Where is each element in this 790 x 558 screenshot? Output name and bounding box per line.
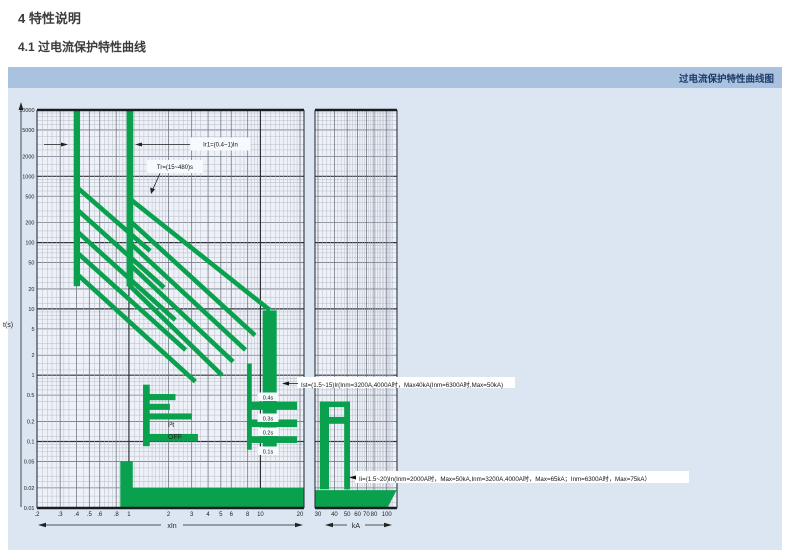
- axis-arrowhead: [384, 523, 392, 527]
- tr-label: Tr=(15~480)s: [157, 165, 193, 171]
- x-tick-label: .8: [114, 512, 120, 518]
- trip-curve-band: [247, 436, 297, 443]
- trip-curve-band: [320, 402, 329, 490]
- ka-instantaneous-block: [315, 490, 397, 508]
- x-tick-label: .3: [58, 512, 64, 518]
- y-tick-label: 2: [31, 353, 34, 359]
- ka-axis-title: kA: [352, 523, 361, 530]
- trip-curve-chart: 100005000200010005002001005020105210.50.…: [0, 88, 790, 550]
- trip-curve-band: [247, 402, 297, 410]
- i2t-off-label: OFF: [168, 434, 182, 441]
- x-tick-label: 4: [206, 512, 210, 518]
- i2t-off-label: I²t: [168, 422, 174, 429]
- x-tick-label: .5: [87, 512, 93, 518]
- y-tick-label: 10: [28, 307, 34, 313]
- x-tick-label: 3: [190, 512, 194, 518]
- step-time-label: 0.1s: [263, 449, 274, 455]
- x-tick-label: 30: [315, 512, 322, 518]
- axis-arrowhead: [325, 523, 333, 527]
- trip-curve-band: [320, 417, 347, 424]
- axis-arrowhead: [295, 523, 303, 527]
- y-tick-label: 20: [28, 287, 34, 293]
- x-tick-label: 70: [363, 512, 370, 518]
- y-tick-label: 1: [31, 373, 34, 379]
- y-tick-label: 0.05: [24, 459, 35, 465]
- x-tick-label: .2: [34, 512, 40, 518]
- x-tick-label: 2: [167, 512, 171, 518]
- x-tick-label: 6: [230, 512, 234, 518]
- ii-annotation: Ii=(1.5~20)In(Inm=2000A时，Max=50kA,Inm=32…: [359, 475, 651, 483]
- x-tick-label: 40: [331, 512, 338, 518]
- y-tick-label: 500: [25, 194, 34, 200]
- x-tick-label: .4: [74, 512, 80, 518]
- y-tick-label: 0.02: [24, 486, 35, 492]
- x-tick-label: 60: [354, 512, 361, 518]
- trip-curve-band: [143, 404, 170, 410]
- instantaneous-notch: [120, 461, 132, 487]
- x-tick-label: .6: [97, 512, 103, 518]
- x-tick-label: 100: [382, 512, 393, 518]
- trip-curve-band: [344, 402, 350, 490]
- y-tick-label: 0.5: [27, 393, 35, 399]
- x-axis-title: xIn: [167, 523, 176, 530]
- ir1-label: Ir1=(0.4~1)In: [203, 143, 238, 149]
- x-tick-label: 5: [219, 512, 223, 518]
- page: 4 特性说明 4.1 过电流保护特性曲线 过电流保护特性曲线图 10000500…: [0, 0, 790, 558]
- x-tick-label: 20: [297, 512, 304, 518]
- y-axis-title: t(s): [3, 322, 13, 329]
- y-tick-label: 200: [25, 221, 34, 227]
- step-time-label: 0.4s: [263, 395, 274, 401]
- y-tick-label: 100: [25, 241, 34, 247]
- step-time-label: 0.2s: [263, 430, 274, 436]
- y-tick-label: 0.2: [27, 420, 35, 426]
- y-tick-label: 5: [31, 327, 34, 333]
- y-tick-label: 0.01: [24, 506, 35, 512]
- y-tick-label: 2000: [22, 154, 34, 160]
- instantaneous-block: [120, 488, 304, 508]
- trip-curve-band: [143, 394, 175, 400]
- ist-annotation: Ist=(1.5~15)Ir(Inm=3200A,4000A时，Max40kA(…: [301, 381, 503, 389]
- trip-curve-band: [74, 110, 80, 286]
- x-tick-label: 8: [246, 512, 250, 518]
- y-tick-label: 50: [28, 261, 34, 267]
- panel-header: 过电流保护特性曲线图: [8, 67, 782, 88]
- y-tick-label: 5000: [22, 128, 34, 134]
- x-tick-label: 80: [371, 512, 378, 518]
- panel-header-title: 过电流保护特性曲线图: [679, 71, 774, 85]
- subsection-title: 4.1 过电流保护特性曲线: [18, 38, 146, 55]
- x-tick-label: 50: [344, 512, 351, 518]
- trip-curve-band: [143, 413, 192, 419]
- x-tick-label: 10: [257, 512, 264, 518]
- y-axis-arrowhead: [19, 102, 24, 110]
- y-tick-label: 0.1: [27, 440, 35, 446]
- axis-arrowhead: [38, 523, 46, 527]
- step-time-label: 0.3s: [263, 416, 274, 422]
- section-title: 4 特性说明: [18, 8, 81, 27]
- x-tick-label: 1: [127, 512, 131, 518]
- y-tick-label: 1000: [22, 174, 34, 180]
